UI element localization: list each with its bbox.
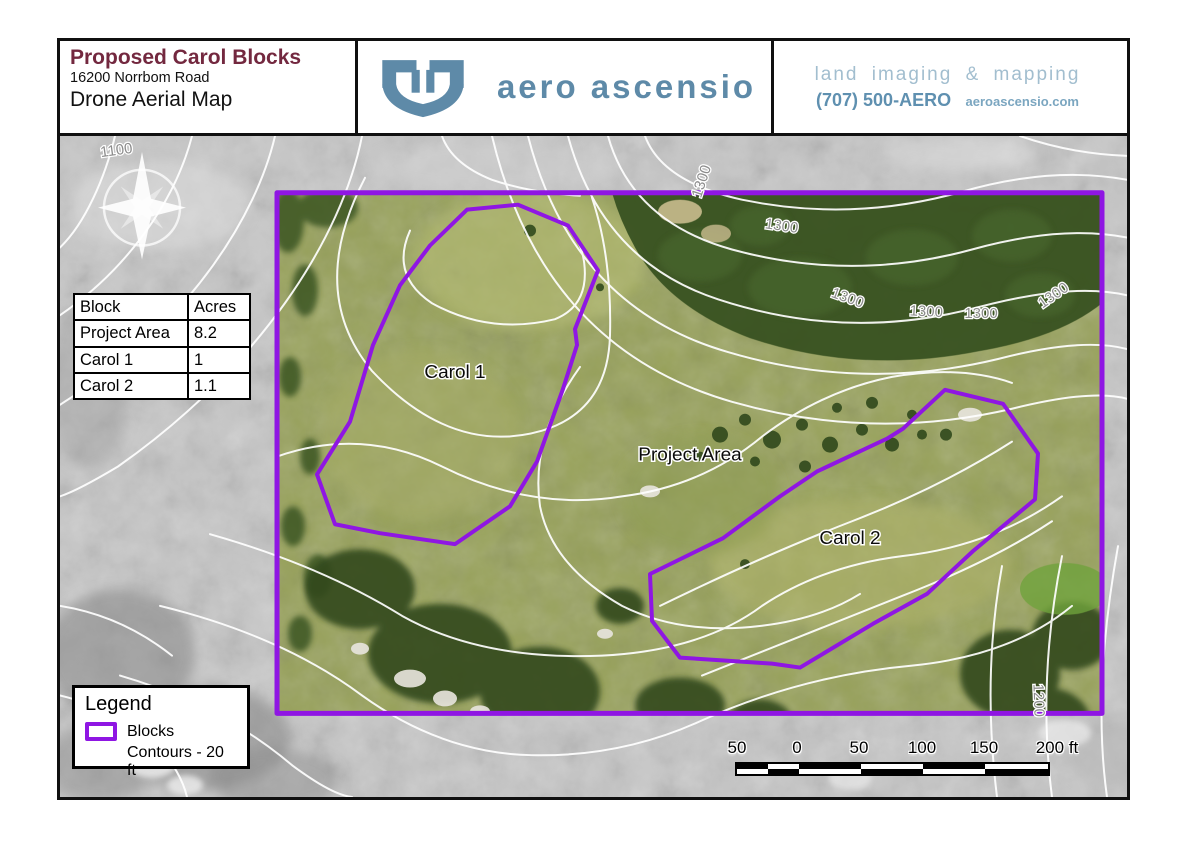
brand-block: aero ascensio <box>358 41 774 133</box>
map-title: Proposed Carol Blocks <box>70 46 345 70</box>
legend-blocks-label: Blocks <box>127 723 174 741</box>
legend: Legend Blocks Contours - 20 ft <box>72 685 250 769</box>
blocks-swatch-icon <box>85 722 117 741</box>
map-subtitle: Drone Aerial Map <box>70 87 345 112</box>
contact-block: land imaging & mapping (707) 500-AERO ae… <box>774 41 1127 133</box>
website-url: aeroascensio.com <box>966 94 1079 109</box>
scale-label: 200 ft <box>1036 738 1079 758</box>
block-name: Project Area <box>74 320 188 346</box>
table-row: Carol 1 1 <box>74 347 250 373</box>
scale-label: 0 <box>792 738 801 758</box>
block-name: Carol 2 <box>74 373 188 399</box>
map-frame: Proposed Carol Blocks 16200 Norrbom Road… <box>57 38 1130 800</box>
contact-line: (707) 500-AERO aeroascensio.com <box>816 90 1079 111</box>
table-row: Project Area 8.2 <box>74 320 250 346</box>
carol-1-label: Carol 1 <box>424 362 485 383</box>
title-block: Proposed Carol Blocks 16200 Norrbom Road… <box>60 41 358 133</box>
table-header-row: Block Acres <box>74 294 250 320</box>
block-acres: 8.2 <box>188 320 250 346</box>
table-row: Carol 2 1.1 <box>74 373 250 399</box>
map-canvas: Carol 1 Project Area Carol 2 1100 1300 1… <box>60 136 1127 797</box>
scale-label: 50 <box>728 738 747 758</box>
block-acres: 1.1 <box>188 373 250 399</box>
block-acres: 1 <box>188 347 250 373</box>
acreage-table: Block Acres Project Area 8.2 Carol 1 1 C… <box>73 293 251 400</box>
terrain-texture-colour <box>272 188 1112 755</box>
map-sheet: Proposed Carol Blocks 16200 Norrbom Road… <box>0 0 1200 848</box>
column-header-acres: Acres <box>188 294 250 320</box>
scale-label: 100 <box>908 738 936 758</box>
contour-label-1300: 1300 <box>964 305 997 322</box>
legend-item-blocks: Blocks <box>85 722 237 741</box>
brand-tagline: land imaging & mapping <box>815 64 1081 86</box>
brand-name: aero ascensio <box>497 68 756 106</box>
project-area-label: Project Area <box>638 445 742 466</box>
aero-ascensio-logo-icon <box>373 52 473 122</box>
legend-title: Legend <box>85 693 237 716</box>
scale-bar <box>735 762 1050 776</box>
contour-label-1300: 1300 <box>909 302 943 321</box>
map-address: 16200 Norrbom Road <box>70 70 345 87</box>
scale-label: 50 <box>850 738 869 758</box>
block-name: Carol 1 <box>74 347 188 373</box>
contour-label-1200: 1200 <box>1029 683 1047 717</box>
header: Proposed Carol Blocks 16200 Norrbom Road… <box>60 41 1127 136</box>
carol-2-label: Carol 2 <box>819 528 880 549</box>
scale-label: 150 <box>970 738 998 758</box>
legend-contours-label: Contours - 20 ft <box>85 744 237 780</box>
column-header-block: Block <box>74 294 188 320</box>
phone-number: (707) 500-AERO <box>816 90 951 110</box>
